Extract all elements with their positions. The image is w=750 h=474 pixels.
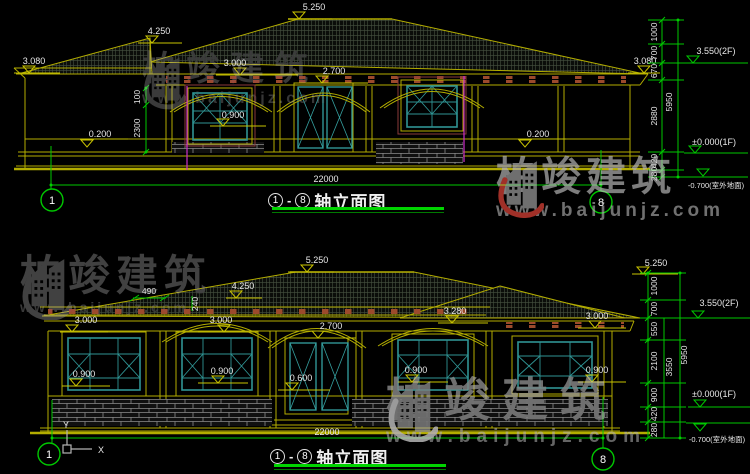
svg-text:2100: 2100 bbox=[649, 351, 659, 370]
level-2f-bottom: 3.550(2F) bbox=[699, 298, 738, 308]
axis-bubble-1b: 1 bbox=[46, 449, 52, 461]
dim-overall-top: 22000 bbox=[313, 174, 338, 184]
dim-2300: 2300 bbox=[132, 118, 142, 137]
svg-text:700: 700 bbox=[649, 302, 659, 316]
dim-100: 100 bbox=[132, 90, 142, 104]
level-ground-bottom: -0.700(室外地面) bbox=[689, 434, 746, 444]
label-win4-head: 3.000 bbox=[586, 311, 609, 321]
svg-text:420: 420 bbox=[649, 154, 659, 168]
svg-text:700: 700 bbox=[649, 46, 659, 60]
svg-text:1000: 1000 bbox=[649, 22, 659, 41]
dim-overall-bottom: 22000 bbox=[314, 427, 339, 437]
level-1f-bottom: ±0.000(1F) bbox=[692, 389, 736, 399]
chain-mid-bottom: 3550 bbox=[664, 357, 674, 376]
title-underline2-bottom bbox=[274, 469, 446, 470]
label-win3-sill: 0.900 bbox=[405, 365, 428, 375]
label-win4-sill: 0.900 bbox=[586, 365, 609, 375]
label-door-sill: 0.600 bbox=[290, 373, 313, 383]
label-eave-left: 3.080 bbox=[23, 56, 46, 66]
label-ridge-b: 5.250 bbox=[306, 255, 329, 265]
svg-text:900: 900 bbox=[649, 388, 659, 402]
level-1f-top: ±0.000(1F) bbox=[692, 137, 736, 147]
title-underline-top bbox=[272, 207, 444, 210]
title-axis-to-top: 8 bbox=[295, 193, 310, 208]
svg-text:670: 670 bbox=[649, 64, 659, 78]
axis-bubble-8b: 8 bbox=[600, 454, 606, 466]
label-win1-sill: 0.900 bbox=[73, 369, 96, 379]
cad-viewport[interactable]: 5.250 4.250 3.080 3.000 2.700 0.900 0.20… bbox=[0, 0, 750, 474]
label-win1-head: 3.000 bbox=[75, 315, 98, 325]
title-axis-from-top: 1 bbox=[268, 193, 283, 208]
title-underline2-top bbox=[272, 212, 444, 213]
bottom-elevation-drawing[interactable]: 5.250 4.250 3.000 3.000 2.700 3.280 3.00… bbox=[0, 237, 750, 474]
label-window-sill: 0.900 bbox=[222, 110, 245, 120]
chain-total-bottom: 5950 bbox=[679, 345, 689, 364]
title-axis-from-bottom: 1 bbox=[270, 449, 285, 464]
dentil-row-bottom-left bbox=[48, 308, 482, 314]
window-2 bbox=[162, 324, 272, 397]
label-window-head: 3.000 bbox=[224, 58, 247, 68]
label-win2-sill: 0.900 bbox=[211, 366, 234, 376]
ucs-y-label: Y bbox=[63, 420, 69, 430]
label-wing-ridge: 4.250 bbox=[148, 26, 171, 36]
svg-text:280: 280 bbox=[649, 423, 659, 437]
label-door-head-b: 2.700 bbox=[320, 321, 343, 331]
dim-240: 240 bbox=[190, 297, 200, 311]
entrance-door bbox=[268, 329, 366, 415]
brick-wainscot-top-right bbox=[376, 142, 463, 164]
label-win2-head: 3.000 bbox=[210, 315, 233, 325]
brick-wainscot-bottom-right bbox=[352, 399, 608, 426]
title-underline-bottom bbox=[274, 464, 446, 467]
ucs-x-label: X bbox=[98, 445, 104, 455]
svg-text:1000: 1000 bbox=[649, 276, 659, 295]
label-win3-head: 3.280 bbox=[444, 306, 467, 316]
walls-top bbox=[14, 78, 650, 169]
title-separator-top: - bbox=[287, 193, 291, 208]
axis-bubble-1: 1 bbox=[49, 195, 55, 207]
axis-bubble-8: 8 bbox=[598, 197, 604, 209]
level-2f-top: 3.550(2F) bbox=[696, 46, 735, 56]
level-ground-top: -0.700(室外地面) bbox=[688, 180, 745, 190]
dim-490: 490 bbox=[142, 286, 156, 296]
dentil-row-top bbox=[166, 76, 626, 83]
window-3 bbox=[378, 329, 488, 397]
label-plinth-right: 0.200 bbox=[527, 129, 550, 139]
french-door-top bbox=[277, 83, 370, 152]
dentil-row-bottom-right bbox=[496, 322, 624, 328]
svg-text:2880: 2880 bbox=[649, 106, 659, 125]
svg-text:280: 280 bbox=[649, 167, 659, 181]
window-arched-right bbox=[380, 77, 484, 134]
brick-wainscot-bottom-left bbox=[52, 399, 272, 426]
title-axis-to-bottom: 8 bbox=[297, 449, 312, 464]
chain-total-top: 5950 bbox=[664, 92, 674, 111]
label-plinth-left: 0.200 bbox=[89, 129, 112, 139]
svg-text:550: 550 bbox=[649, 322, 659, 336]
label-door-head: 2.700 bbox=[323, 66, 346, 76]
label-ridge: 5.250 bbox=[303, 2, 326, 12]
title-separator-bottom: - bbox=[289, 449, 293, 464]
label-ridge-right-b: 5.250 bbox=[645, 258, 668, 268]
label-wing-ridge-b: 4.250 bbox=[232, 281, 255, 291]
svg-text:420: 420 bbox=[649, 407, 659, 421]
